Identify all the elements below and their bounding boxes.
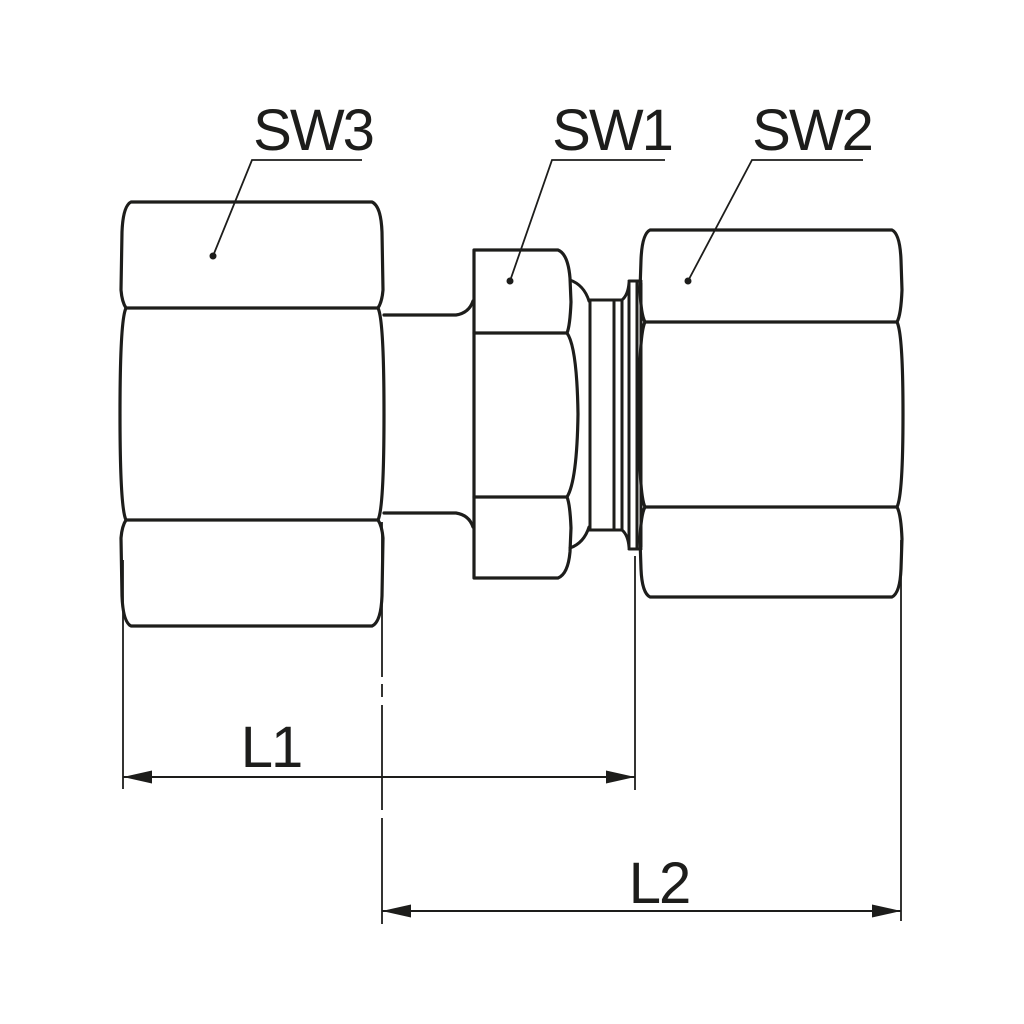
arrowhead-l2-right: [872, 905, 901, 918]
leader-sw2: SW2: [685, 98, 872, 285]
leader-dot-sw2: [685, 278, 692, 285]
left-hex-nut: [120, 202, 384, 626]
left-hex-outline: [120, 202, 384, 626]
technical-drawing-page: SW3 SW1 SW2 L1 L2: [0, 0, 1024, 1024]
right-hex-outline: [639, 230, 903, 597]
neck-cylinder: [384, 301, 473, 527]
arrowhead-l1-left: [123, 771, 152, 784]
arrowhead-l2-left: [382, 905, 411, 918]
middle-hex-union-nut: [474, 250, 578, 578]
leader-dot-sw1: [507, 278, 514, 285]
leader-sw3: SW3: [210, 98, 373, 260]
dimension-label-l2: L2: [629, 851, 690, 916]
leader-line-sw3: [213, 160, 362, 256]
leader-dot-sw3: [210, 253, 217, 260]
arrowhead-l1-right: [606, 771, 635, 784]
dimension-label-l1: L1: [241, 715, 302, 780]
neck-top-line: [384, 301, 473, 315]
fillet-bottom: [570, 527, 589, 548]
middle-hex-outline: [474, 250, 578, 578]
neck-bottom-line: [384, 513, 473, 527]
label-sw1: SW1: [552, 98, 672, 163]
dimension-l1: L1: [123, 556, 635, 790]
leader-line-sw2: [688, 160, 863, 281]
right-hex-nut: [639, 230, 903, 597]
fillet-top: [570, 280, 589, 301]
label-sw3: SW3: [253, 98, 373, 163]
fitting-technical-drawing: SW3 SW1 SW2 L1 L2: [0, 0, 1024, 1024]
leader-sw1: SW1: [507, 98, 672, 285]
ferrule-ring-section: [570, 280, 641, 549]
label-sw2: SW2: [752, 98, 872, 163]
